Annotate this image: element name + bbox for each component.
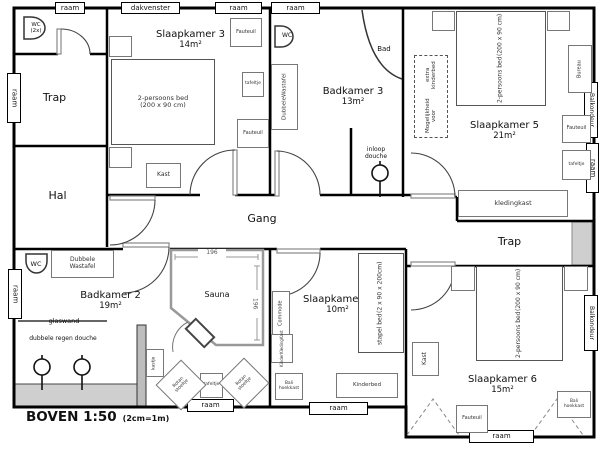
sauna-width-dimension: 196 (198, 249, 226, 258)
window-label-bottom-sk4: raam (309, 402, 368, 415)
glass-wall-label: glaswand (42, 317, 86, 327)
room-area: 21m² (470, 132, 539, 142)
walkin-shower-label: inloop douche (350, 144, 402, 163)
door-swing-slaapkamer5 (411, 153, 455, 197)
room-label-gang: Gang (237, 210, 287, 228)
room-area: 19m² (80, 302, 141, 312)
bunkbed-size: (2 x 90 x 200cm) (378, 262, 385, 313)
bali-corner-cabinet-sk4: Bali hoekkast (275, 373, 303, 400)
kkk-line1: Kinder (280, 354, 284, 367)
shower-icon-badkamer3 (372, 165, 388, 181)
door-leaf-wc-room (57, 29, 61, 54)
bed-size: (200 x 90 cm) (516, 269, 523, 311)
rain-shower-label: dubbele regen douche (22, 334, 104, 344)
shower-wall-shading (137, 325, 146, 406)
desk-sk5: Bureau (568, 45, 592, 93)
bed-slaapkamer6: 2-persoons bed (200 x 90 cm) (476, 266, 563, 361)
window-label-left-trap: raam (7, 73, 21, 123)
room-label-sauna: Sauna (193, 288, 241, 301)
kkk-line2: Kleding (280, 339, 284, 354)
closet-kledingkast: kledingkast (458, 190, 568, 217)
door-swing-slaapkamer6 (411, 266, 455, 310)
nightstand (432, 11, 455, 31)
kids-clothing-closet: Kinder Kleding Kast (271, 334, 293, 363)
armchair-sk3-bottom: Fauteuil (237, 119, 269, 148)
armchair-sk6: Fauteuil (456, 405, 488, 433)
walkin-shower-line2: douche (365, 154, 387, 161)
window-label-top-1: raam (55, 2, 85, 14)
window-label-bottom-sauna: raam (187, 399, 234, 412)
armchair-sk3-top: Fauteuil (230, 18, 262, 47)
wardrobe-sk3: Kast (146, 163, 181, 188)
nightstand (451, 266, 475, 291)
wc-double-label: WC (2x) (21, 17, 51, 39)
kkk-line3: Kast (280, 330, 284, 339)
wc-label-badkamer3: WC (277, 30, 297, 42)
bath-label: Bad (368, 43, 400, 56)
childbed-sk4: Kinderbed (336, 373, 398, 398)
extra-childbed-line1: Mogelijkheid voor (425, 94, 437, 137)
washbasin-line1: Dubbele (281, 97, 287, 120)
room-label-slaapkamer6: Slaapkamer 6 15m² (450, 370, 555, 400)
armchair-sk5: Fauteuil (562, 115, 591, 143)
extra-childbed-line2: extra kinderbed (425, 56, 437, 94)
room-area: 14m² (156, 41, 225, 51)
double-washbasin-badkamer2: Dubbele Wastafel (51, 250, 114, 278)
shower-floor-shading (15, 384, 139, 406)
bed-name: 2-persoons bed (498, 56, 505, 103)
bali-line2: hoekkast (279, 387, 299, 392)
door-leaf-badkamer2 (123, 243, 169, 247)
stair-landing-shading (572, 222, 592, 265)
nightstand (109, 147, 132, 168)
nightstand (547, 11, 570, 31)
plan-title-text: BOVEN 1:50 (26, 409, 117, 425)
door-leaf-slaapkamer4 (277, 249, 320, 253)
bunkbed-name: stapel bed (378, 313, 385, 345)
nightstand (564, 266, 588, 291)
plan-scale-note: (2cm=1m) (123, 414, 170, 423)
door-leaf-slaapkamer5 (411, 194, 455, 198)
door-swing-badkamer3 (277, 151, 320, 195)
bunkbed-slaapkamer4: stapel bed (2 x 90 x 200cm) (358, 253, 404, 353)
small-cabinet-kastje: kastje (146, 349, 164, 377)
door-leaf-badkamer3 (275, 151, 279, 196)
balcony-door-label-sk6: Balkondeur (584, 295, 598, 351)
wc-count-label: (2x) (30, 28, 41, 34)
room-label-badkamer3: Badkamer 3 13m² (303, 82, 403, 112)
room-label-trap-right: Trap (487, 234, 532, 250)
side-table-sk5: tafeltje (562, 150, 591, 180)
room-label-trap-left: Trap (32, 90, 77, 106)
bed-size: (200 x 90 cm) (138, 102, 188, 109)
wc-label-badkamer2: WC (25, 258, 47, 272)
window-label-top-2: raam (215, 2, 262, 14)
room-area: 13m² (323, 98, 384, 108)
room-label-slaapkamer5: Slaapkamer 5 21m² (452, 116, 557, 146)
sauna-door-swing (173, 322, 188, 352)
bed-name: 2-persoons bed (516, 311, 523, 358)
room-area: 15m² (468, 386, 537, 396)
side-table-sk3: tafeltje (242, 72, 264, 97)
bali-corner-cabinet-sk6: Bali hoekkast (557, 391, 591, 418)
sauna-door-leaf (186, 319, 214, 347)
window-label-top-3: raam (271, 2, 320, 14)
window-label-left-badkamer2: raam (8, 269, 22, 319)
washbasin-line2: Wastafel (281, 74, 287, 98)
plan-title: BOVEN 1:50 (2cm=1m) (26, 409, 169, 425)
commode-sk4: Commode (272, 291, 290, 335)
bed-slaapkamer3: 2-persoons bed (200 x 90 cm) (111, 59, 215, 145)
bed-slaapkamer5: 2-persoons bed (200 x 90 cm) (456, 11, 546, 106)
extra-childbed-zone: Mogelijkheid voor extra kinderbed (414, 55, 448, 138)
wardrobe-sk6: Kast (412, 342, 439, 376)
shower-icon-badkamer2-right (74, 359, 90, 375)
bali-line2: hoekkast (564, 405, 584, 410)
door-swing-wc-room (61, 29, 90, 54)
room-label-hal: Hal (35, 188, 80, 204)
washbasin-line2: Wastafel (70, 264, 96, 271)
door-leaf-slaapkamer3 (233, 150, 237, 195)
double-washbasin-badkamer3: Dubbele Wastafel (271, 64, 298, 130)
sauna-depth-dimension: 196 (249, 290, 259, 318)
skylight-label: dakvenster (121, 2, 180, 14)
bed-size: (200 x 90 cm) (498, 14, 505, 56)
door-leaf-hal (110, 196, 155, 200)
shower-icon-badkamer2-left (34, 359, 50, 375)
door-swing-hal (110, 200, 155, 245)
nightstand (109, 36, 132, 57)
door-swing-slaapkamer3 (190, 150, 235, 195)
room-label-badkamer2: Badkamer 2 19m² (58, 286, 163, 316)
floor-plan: raam dakvenster raam raam raam raam raam… (0, 0, 600, 450)
door-leaf-slaapkamer6 (411, 262, 455, 266)
